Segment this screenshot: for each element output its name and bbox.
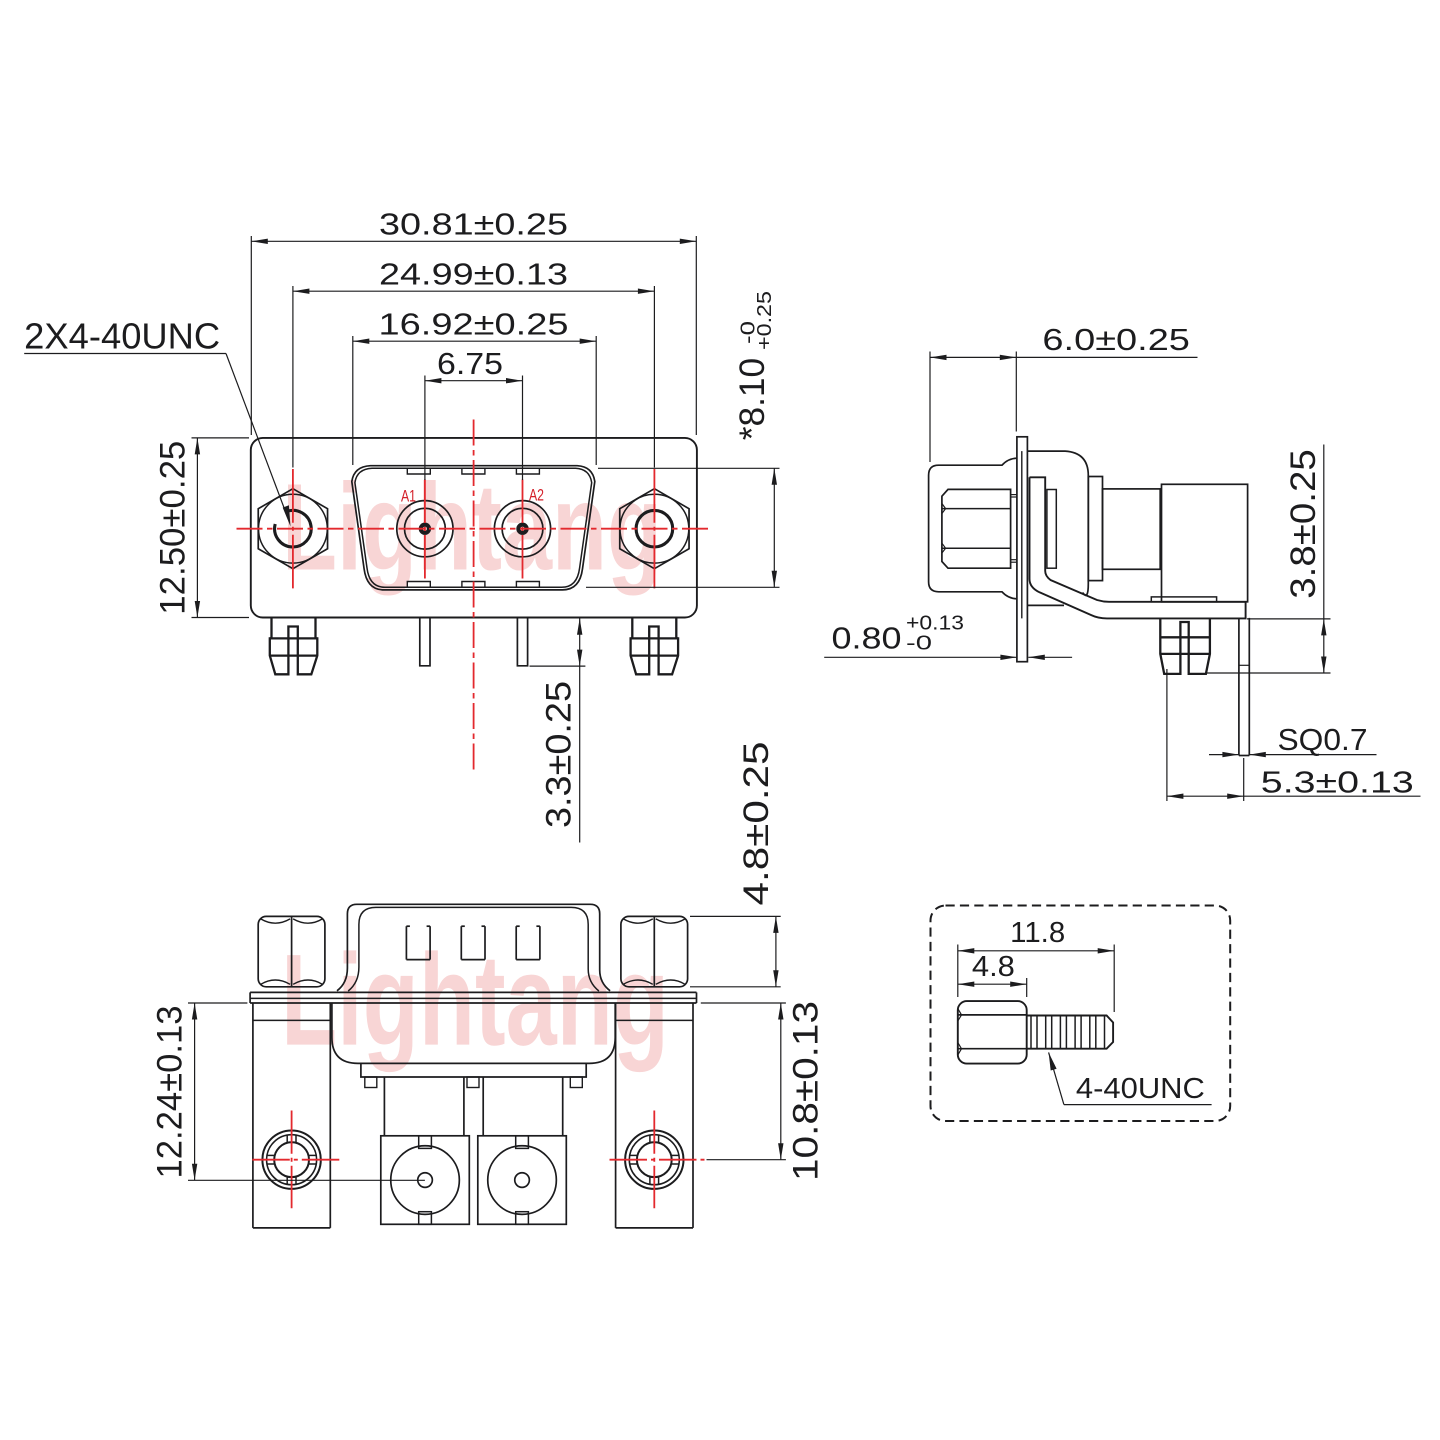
svg-text:-0: -0 bbox=[738, 321, 760, 344]
svg-text:5.3±0.13: 5.3±0.13 bbox=[1261, 765, 1414, 800]
svg-text:*8.10: *8.10 bbox=[732, 358, 772, 441]
svg-text:30.81±0.25: 30.81±0.25 bbox=[379, 207, 568, 242]
svg-text:-0: -0 bbox=[906, 633, 932, 655]
svg-text:A2: A2 bbox=[529, 487, 544, 505]
svg-text:3.8±0.25: 3.8±0.25 bbox=[1283, 449, 1323, 599]
svg-text:6.0±0.25: 6.0±0.25 bbox=[1042, 322, 1190, 357]
svg-text:Lightang: Lightang bbox=[281, 927, 669, 1073]
svg-text:3.3±0.25: 3.3±0.25 bbox=[539, 681, 579, 828]
svg-text:SQ0.7: SQ0.7 bbox=[1278, 722, 1368, 757]
svg-text:4.8±0.25: 4.8±0.25 bbox=[736, 742, 776, 906]
svg-text:12.24±0.13: 12.24±0.13 bbox=[150, 1006, 190, 1179]
svg-text:11.8: 11.8 bbox=[1010, 917, 1065, 949]
svg-text:4.8: 4.8 bbox=[972, 951, 1015, 983]
svg-text:16.92±0.25: 16.92±0.25 bbox=[379, 307, 569, 342]
svg-text:A1: A1 bbox=[401, 488, 416, 506]
svg-text:0.80: 0.80 bbox=[832, 620, 902, 655]
svg-text:24.99±0.13: 24.99±0.13 bbox=[379, 257, 568, 292]
svg-text:+0.13: +0.13 bbox=[906, 613, 964, 635]
svg-text:10.8±0.13: 10.8±0.13 bbox=[786, 1001, 826, 1181]
svg-text:2X4-40UNC: 2X4-40UNC bbox=[24, 315, 220, 356]
svg-text:12.50±0.25: 12.50±0.25 bbox=[153, 441, 193, 615]
svg-text:6.75: 6.75 bbox=[437, 346, 503, 381]
svg-text:4-40UNC: 4-40UNC bbox=[1076, 1073, 1205, 1105]
